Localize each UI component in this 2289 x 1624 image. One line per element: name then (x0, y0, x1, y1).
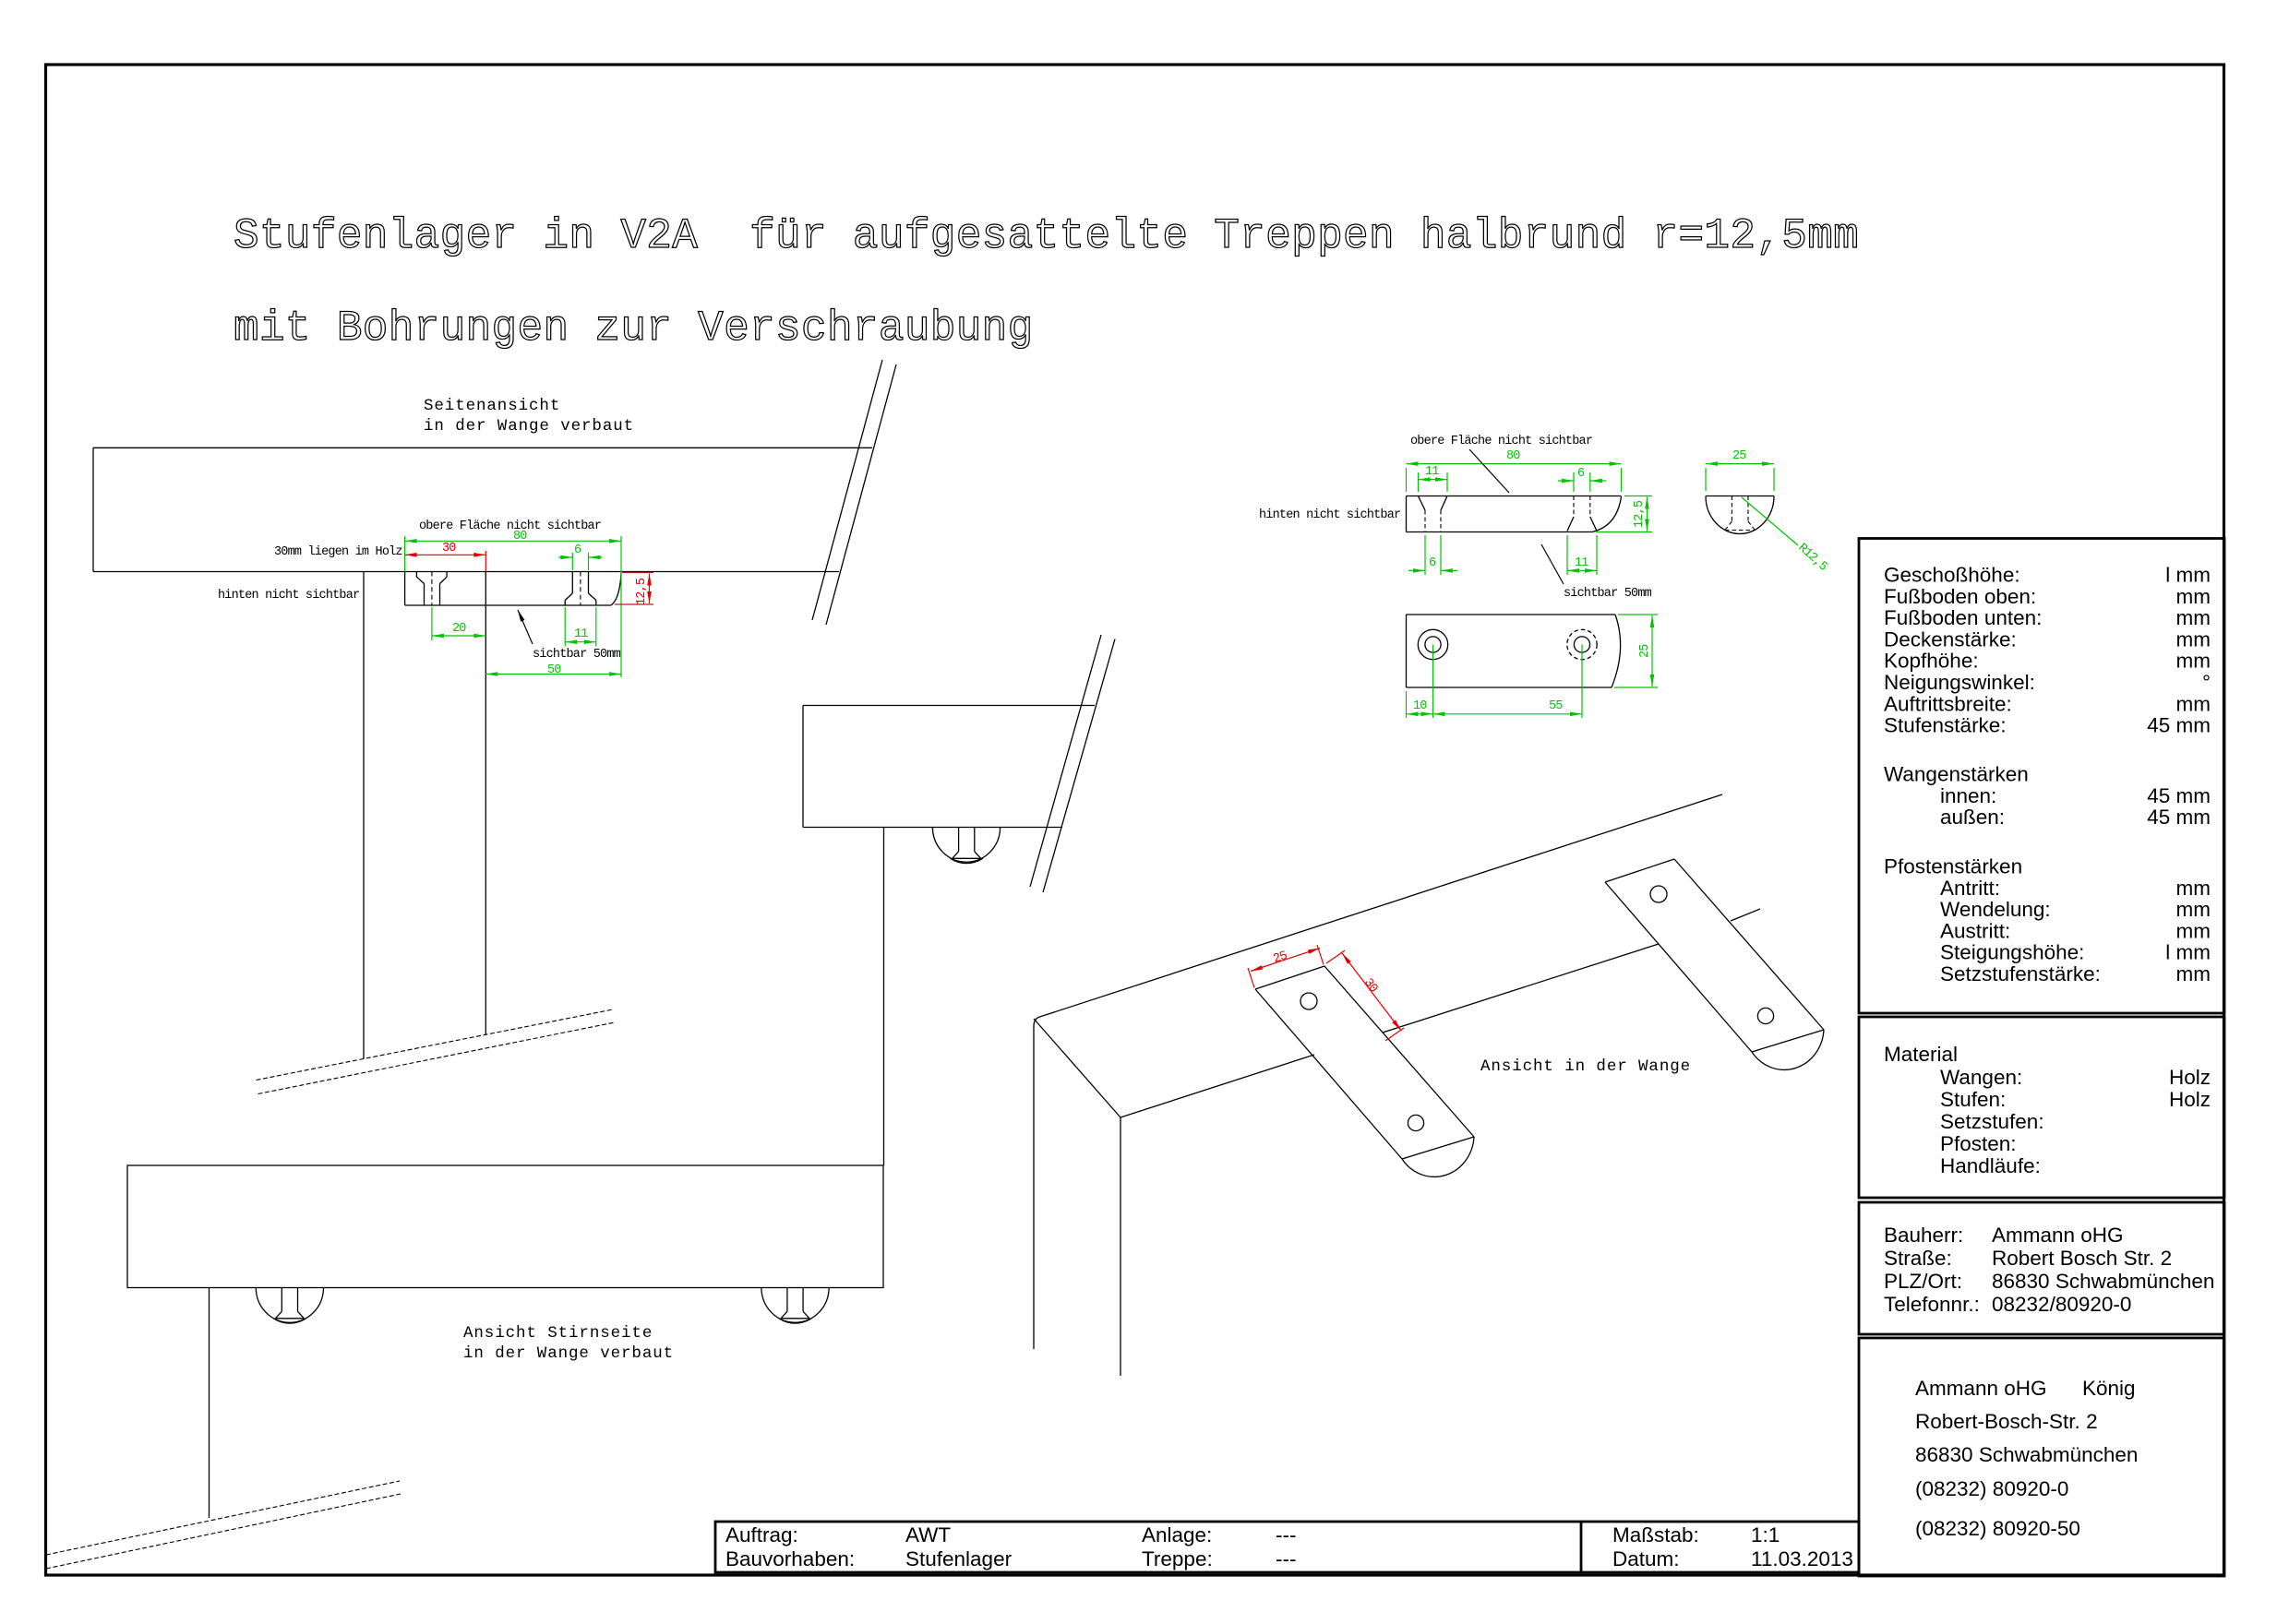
svg-text:Setzstufenstärke:: Setzstufenstärke: (1940, 962, 2101, 985)
svg-text:Steigungshöhe:: Steigungshöhe: (1940, 941, 2084, 964)
svg-text:Neigungswinkel:: Neigungswinkel: (1884, 671, 2035, 694)
svg-text:König: König (2082, 1377, 2136, 1400)
svg-text:Stufenstärke:: Stufenstärke: (1884, 714, 2007, 737)
svg-text:Robert Bosch Str. 2: Robert Bosch Str. 2 (1992, 1247, 2172, 1270)
svg-text:Ammann oHG: Ammann oHG (1992, 1224, 2124, 1247)
svg-text:Kopfhöhe:: Kopfhöhe: (1884, 650, 1979, 673)
svg-text:AWT: AWT (905, 1523, 951, 1546)
svg-text:°: ° (2202, 671, 2211, 694)
svg-text:Ammann oHG: Ammann oHG (1915, 1377, 2047, 1400)
svg-text:45 mm: 45 mm (2147, 806, 2211, 829)
svg-text:Wendelung:: Wendelung: (1940, 898, 2051, 921)
svg-text:12,5: 12,5 (1633, 500, 1647, 528)
svg-text:Wangen:: Wangen: (1940, 1066, 2022, 1089)
svg-text:Treppe:: Treppe: (1142, 1547, 1213, 1570)
svg-text:55: 55 (1549, 699, 1563, 713)
svg-text:Fußboden oben:: Fußboden oben: (1884, 585, 2036, 608)
svg-text:Anlage:: Anlage: (1142, 1523, 1212, 1546)
svg-text:6: 6 (1429, 556, 1436, 570)
svg-text:Stufenlager in V2A für aufges: Stufenlager in V2A für aufgesattelte Tre… (234, 212, 1859, 260)
svg-text:in der Wange verbaut: in der Wange verbaut (424, 417, 634, 436)
svg-text:08232/80920-0: 08232/80920-0 (1992, 1293, 2131, 1316)
svg-text:Antritt:: Antritt: (1940, 877, 2000, 900)
svg-text:Holz: Holz (2169, 1066, 2211, 1089)
svg-text:30mm liegen im Holz: 30mm liegen im Holz (274, 545, 402, 559)
svg-text:Handläufe:: Handläufe: (1940, 1154, 2041, 1177)
svg-text:mm: mm (2176, 919, 2211, 942)
svg-text:obere Fläche nicht sichtbar: obere Fläche nicht sichtbar (419, 519, 601, 533)
svg-text:Geschoßhöhe:: Geschoßhöhe: (1884, 564, 2020, 587)
svg-text:mm: mm (2176, 692, 2211, 715)
svg-text:11.03.2013: 11.03.2013 (1751, 1547, 1853, 1570)
svg-text:mm: mm (2176, 606, 2211, 629)
svg-text:hinten nicht sichtbar: hinten nicht sichtbar (1259, 508, 1400, 522)
svg-text:mm: mm (2176, 898, 2211, 921)
svg-text:11: 11 (1575, 556, 1588, 570)
svg-text:25: 25 (1638, 644, 1652, 658)
svg-text:l mm: l mm (2165, 941, 2211, 964)
svg-text:Ansicht Stirnseite: Ansicht Stirnseite (463, 1324, 653, 1343)
svg-text:mm: mm (2176, 962, 2211, 985)
svg-text:l mm: l mm (2165, 564, 2211, 587)
svg-text:Stufen:: Stufen: (1940, 1088, 2006, 1111)
svg-text:mm: mm (2176, 627, 2211, 651)
svg-text:Material: Material (1884, 1043, 1958, 1066)
svg-text:11: 11 (574, 627, 588, 641)
svg-text:Maßstab:: Maßstab: (1612, 1523, 1699, 1546)
svg-text:Wangenstärken: Wangenstärken (1884, 763, 2029, 786)
svg-text:Ansicht in der Wange: Ansicht in der Wange (1480, 1057, 1691, 1076)
svg-text:45 mm: 45 mm (2147, 784, 2211, 807)
svg-text:6: 6 (574, 543, 581, 557)
svg-text:86830 Schwabmünchen: 86830 Schwabmünchen (1992, 1270, 2214, 1293)
svg-text:Telefonnr.:: Telefonnr.: (1884, 1293, 1980, 1316)
svg-text:10: 10 (1413, 699, 1427, 713)
svg-text:20: 20 (452, 622, 466, 636)
svg-text:45 mm: 45 mm (2147, 714, 2211, 737)
svg-text:80: 80 (1506, 449, 1520, 463)
svg-text:außen:: außen: (1940, 806, 2005, 829)
svg-text:sichtbar 50mm: sichtbar 50mm (533, 648, 621, 662)
svg-text:12,5: 12,5 (635, 578, 649, 605)
svg-text:Fußboden unten:: Fußboden unten: (1884, 606, 2042, 629)
svg-text:Austritt:: Austritt: (1940, 919, 2010, 942)
svg-text:25: 25 (1732, 449, 1746, 463)
svg-text:Robert-Bosch-Str. 2: Robert-Bosch-Str. 2 (1915, 1410, 2098, 1433)
svg-text:mm: mm (2176, 585, 2211, 608)
svg-text:mm: mm (2176, 877, 2211, 900)
svg-text:---: --- (1276, 1523, 1296, 1546)
svg-text:Deckenstärke:: Deckenstärke: (1884, 627, 2017, 651)
svg-text:Bauvorhaben:: Bauvorhaben: (725, 1547, 855, 1570)
svg-text:---: --- (1276, 1547, 1296, 1570)
svg-text:1:1: 1:1 (1751, 1523, 1780, 1546)
svg-text:Setzstufen:: Setzstufen: (1940, 1110, 2044, 1133)
svg-text:Seitenansicht: Seitenansicht (424, 397, 560, 415)
svg-text:in der Wange verbaut: in der Wange verbaut (463, 1344, 674, 1363)
svg-text:Bauherr:: Bauherr: (1884, 1224, 1963, 1247)
svg-text:hinten nicht sichtbar: hinten nicht sichtbar (218, 589, 359, 603)
svg-text:mit Bohrungen zur Verschraubun: mit Bohrungen zur Verschraubung (234, 304, 1034, 352)
svg-text:(08232) 80920-50: (08232) 80920-50 (1915, 1517, 2080, 1540)
svg-text:obere Fläche nicht sichtbar: obere Fläche nicht sichtbar (1410, 435, 1592, 448)
svg-text:11: 11 (1425, 465, 1439, 479)
svg-text:Pfostenstärken: Pfostenstärken (1884, 855, 2022, 878)
svg-text:Datum:: Datum: (1612, 1547, 1680, 1570)
svg-text:6: 6 (1577, 467, 1585, 481)
svg-text:50: 50 (547, 663, 561, 677)
svg-text:86830 Schwabmünchen: 86830 Schwabmünchen (1915, 1443, 2138, 1466)
svg-text:Holz: Holz (2169, 1088, 2211, 1111)
svg-text:innen:: innen: (1940, 784, 1996, 807)
svg-text:(08232) 80920-0: (08232) 80920-0 (1915, 1477, 2068, 1500)
svg-text:sichtbar 50mm: sichtbar 50mm (1564, 587, 1652, 601)
svg-text:mm: mm (2176, 650, 2211, 673)
svg-text:Straße:: Straße: (1884, 1247, 1952, 1270)
svg-text:30: 30 (442, 542, 456, 555)
svg-text:Stufenlager: Stufenlager (905, 1547, 1013, 1570)
svg-text:Pfosten:: Pfosten: (1940, 1132, 2017, 1155)
svg-text:Auftrag:: Auftrag: (725, 1523, 798, 1546)
svg-text:Auftrittsbreite:: Auftrittsbreite: (1884, 692, 2012, 715)
svg-text:PLZ/Ort:: PLZ/Ort: (1884, 1270, 1962, 1293)
